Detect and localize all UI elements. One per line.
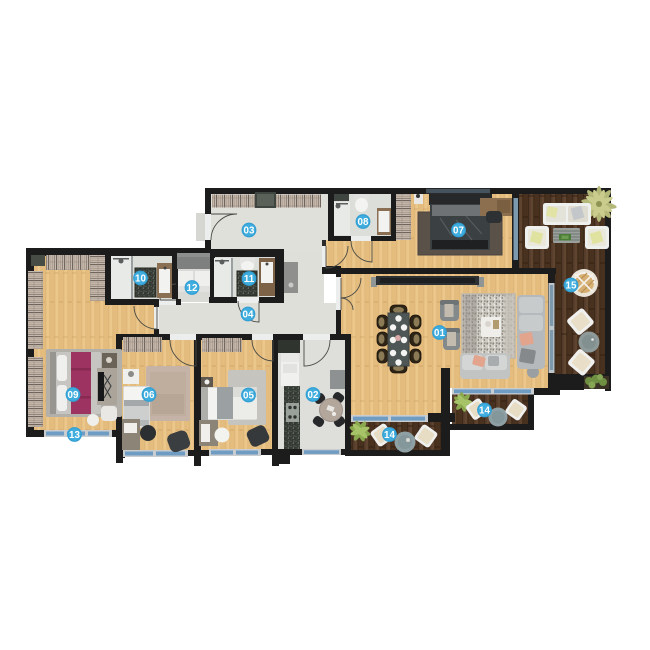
svg-text:15: 15 bbox=[566, 281, 577, 292]
svg-text:11: 11 bbox=[244, 274, 255, 285]
svg-text:10: 10 bbox=[135, 274, 146, 285]
svg-text:01: 01 bbox=[434, 328, 445, 339]
svg-text:13: 13 bbox=[69, 430, 80, 441]
svg-text:03: 03 bbox=[244, 226, 255, 237]
svg-text:08: 08 bbox=[358, 217, 369, 228]
svg-text:14: 14 bbox=[479, 406, 490, 417]
svg-text:14: 14 bbox=[384, 430, 395, 441]
svg-text:05: 05 bbox=[243, 391, 254, 402]
svg-text:12: 12 bbox=[187, 283, 198, 294]
svg-text:04: 04 bbox=[243, 310, 254, 321]
svg-text:02: 02 bbox=[308, 390, 319, 401]
svg-text:06: 06 bbox=[144, 390, 155, 401]
svg-text:09: 09 bbox=[68, 390, 79, 401]
svg-text:07: 07 bbox=[453, 226, 464, 237]
